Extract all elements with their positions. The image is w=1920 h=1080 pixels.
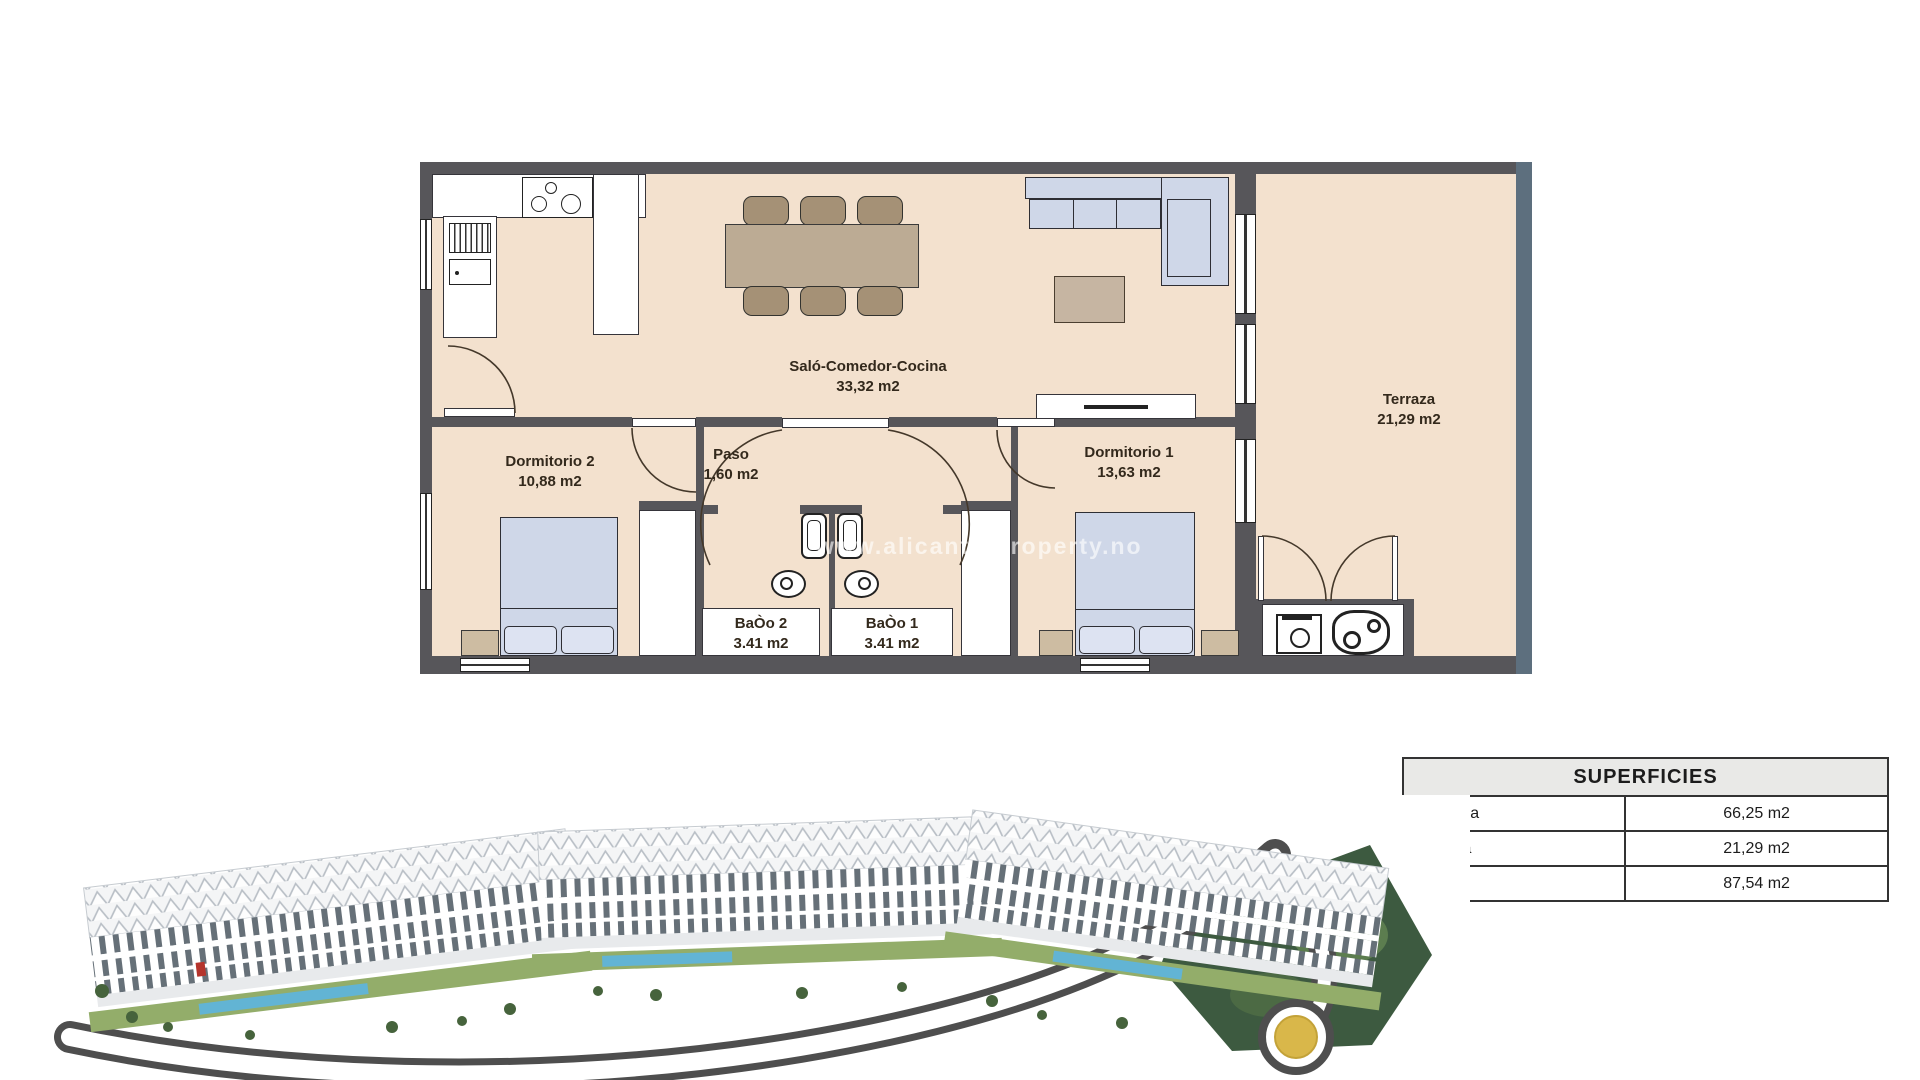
room-name: Saló-Comedor-Cocina xyxy=(789,357,947,377)
roundabout-center-gold xyxy=(1275,1016,1317,1058)
room-label-dormitorio-1: Dormitorio 1 13,63 m2 xyxy=(1084,443,1173,483)
closet-door-arc xyxy=(1331,536,1395,601)
room-area: 1,60 m2 xyxy=(703,465,758,485)
table-row: Total 87,54 m2 xyxy=(1404,867,1887,900)
room-name: BaÒo 1 xyxy=(864,614,919,634)
room-label-salon: Saló-Comedor-Cocina 33,32 m2 xyxy=(789,357,947,397)
room-area: 3.41 m2 xyxy=(733,634,788,654)
room-label-bano-1: BaÒo 1 3.41 m2 xyxy=(864,614,919,654)
entry-door-arc xyxy=(448,346,515,413)
room-name: BaÒo 2 xyxy=(733,614,788,634)
room-label-bano-2: BaÒo 2 3.41 m2 xyxy=(733,614,788,654)
screenshot-root: Saló-Comedor-Cocina 33,32 m2 Terraza 21,… xyxy=(0,0,1920,1080)
red-flag xyxy=(196,962,207,977)
room-area: 3.41 m2 xyxy=(864,634,919,654)
floor-plan: Saló-Comedor-Cocina 33,32 m2 Terraza 21,… xyxy=(420,162,1532,674)
room-name: Terraza xyxy=(1377,390,1440,410)
room-label-paso: Paso 1,60 m2 xyxy=(703,445,758,485)
room-area: 21,29 m2 xyxy=(1377,410,1440,430)
room-name: Paso xyxy=(703,445,758,465)
row-value: 21,29 m2 xyxy=(1626,832,1887,865)
row-value: 66,25 m2 xyxy=(1626,797,1887,830)
superficies-table: SUPERFICIES Vivienda 66,25 m2 Terraza 21… xyxy=(1402,757,1889,902)
room-area: 10,88 m2 xyxy=(505,472,594,492)
door-swing-arcs xyxy=(420,162,1532,674)
aerial-render-image xyxy=(40,795,1470,1080)
row-value: 87,54 m2 xyxy=(1626,867,1887,900)
dorm2-door-arc xyxy=(632,428,696,492)
room-area: 33,32 m2 xyxy=(789,377,947,397)
room-label-dormitorio-2: Dormitorio 2 10,88 m2 xyxy=(505,452,594,492)
table-title: SUPERFICIES xyxy=(1404,759,1887,797)
room-name: Dormitorio 2 xyxy=(505,452,594,472)
room-label-terraza: Terraza 21,29 m2 xyxy=(1377,390,1440,430)
closet-door-arc xyxy=(1262,536,1326,601)
table-row: Terraza 21,29 m2 xyxy=(1404,832,1887,867)
watermark-text: www.alicante-property.no xyxy=(816,533,1143,560)
dorm1-door-arc xyxy=(997,430,1055,488)
table-row: Vivienda 66,25 m2 xyxy=(1404,797,1887,832)
room-name: Dormitorio 1 xyxy=(1084,443,1173,463)
room-area: 13,63 m2 xyxy=(1084,463,1173,483)
